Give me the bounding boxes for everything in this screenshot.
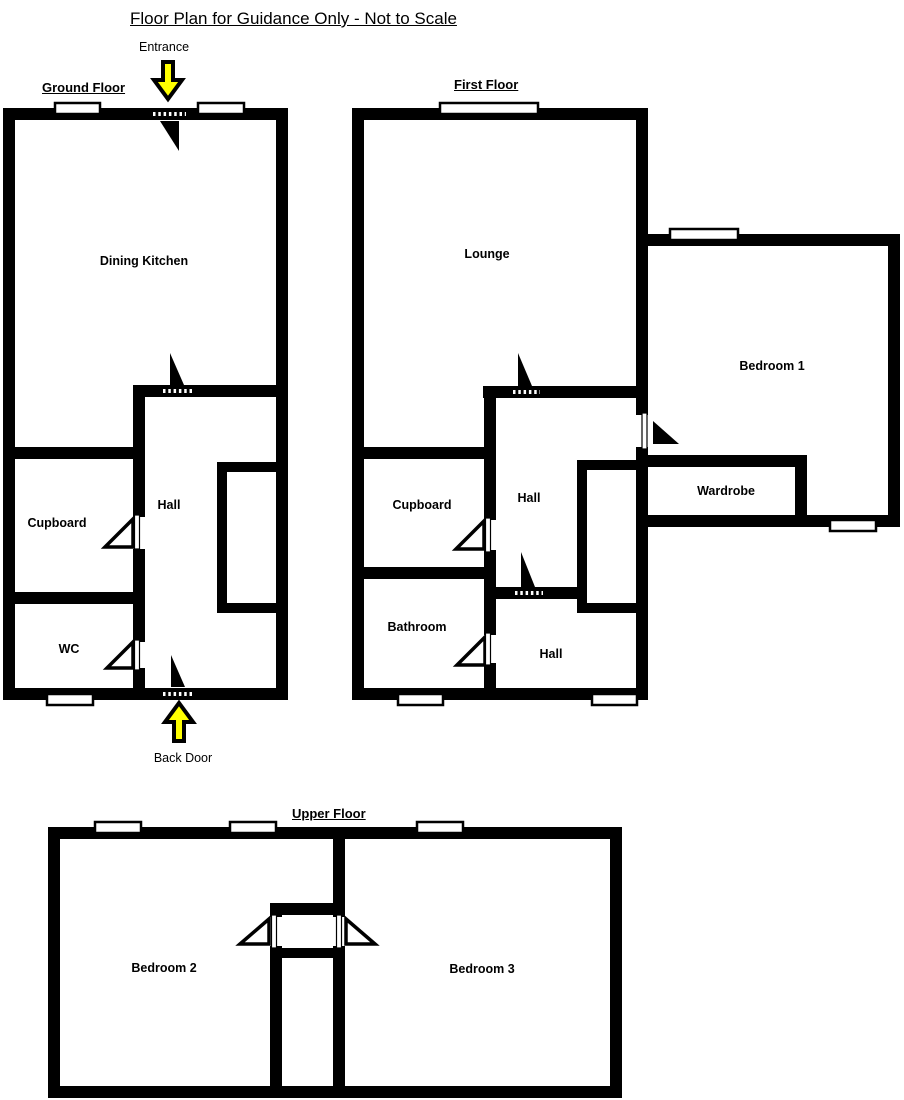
floor-plan-page: Floor Plan for Guidance Only - Not to Sc…	[0, 0, 904, 1100]
window	[47, 694, 93, 705]
wall	[48, 827, 60, 1098]
wall	[352, 567, 496, 579]
ground-floor-title: Ground Floor	[42, 80, 125, 95]
room-label-wardrobe: Wardrobe	[697, 484, 755, 498]
first-floor-title: First Floor	[454, 77, 518, 92]
wall	[3, 108, 15, 700]
door-leaf	[486, 633, 491, 665]
back-door-label: Back Door	[154, 751, 212, 765]
room-label-cupboard-first: Cupboard	[392, 498, 451, 512]
door-swing	[653, 421, 679, 444]
entrance-label: Entrance	[139, 40, 189, 54]
upper-floor-title: Upper Floor	[292, 806, 366, 821]
stair-wall	[577, 460, 648, 470]
window	[198, 103, 244, 114]
stair-wall	[577, 460, 587, 613]
window	[440, 103, 538, 114]
back-door-arrow-icon	[165, 703, 193, 741]
door-leaf	[135, 640, 140, 670]
wall	[3, 592, 145, 604]
room-label-lounge: Lounge	[464, 247, 509, 261]
stair-wall	[282, 948, 333, 958]
wall	[483, 386, 648, 398]
wall	[888, 234, 900, 527]
entrance-arrow-icon	[154, 62, 182, 99]
room-label-bathroom: Bathroom	[387, 620, 446, 634]
room-label-dining-kitchen: Dining Kitchen	[100, 254, 188, 268]
page-title: Floor Plan for Guidance Only - Not to Sc…	[130, 9, 457, 29]
door-leaf	[486, 518, 491, 552]
wall	[133, 385, 288, 397]
door-swing	[456, 521, 484, 549]
wall	[484, 587, 587, 599]
room-label-bedroom-3: Bedroom 3	[449, 962, 514, 976]
first-floor-plan	[352, 103, 900, 705]
door-swing	[518, 353, 532, 386]
arrows	[154, 62, 193, 741]
door-leaf	[272, 915, 277, 948]
door-swing	[107, 642, 133, 668]
stair-wall	[217, 462, 227, 613]
window	[230, 822, 276, 833]
window	[670, 229, 738, 240]
room-label-hall-first-upper: Hall	[518, 491, 541, 505]
stair-wall	[217, 603, 288, 613]
wardrobe-wall	[795, 455, 807, 527]
door-swing	[240, 919, 269, 944]
door-swing	[346, 919, 375, 944]
room-label-hall-ground: Hall	[158, 498, 181, 512]
wall	[3, 447, 145, 459]
floor-plan-drawing	[0, 0, 904, 1100]
upper-floor-plan	[48, 822, 622, 1098]
wall	[610, 827, 622, 1098]
window	[55, 103, 100, 114]
door-swing	[105, 519, 133, 547]
door-swing	[457, 637, 485, 665]
room-label-bedroom-2: Bedroom 2	[131, 961, 196, 975]
window	[830, 520, 876, 531]
door-swing	[521, 552, 535, 587]
window	[95, 822, 141, 833]
door-swing	[171, 655, 185, 687]
stair-wall	[217, 462, 288, 472]
door-swing	[170, 353, 184, 385]
room-label-hall-first-lower: Hall	[540, 647, 563, 661]
door-leaf	[337, 915, 342, 948]
wardrobe-wall	[648, 455, 807, 467]
room-label-bedroom-1: Bedroom 1	[739, 359, 804, 373]
door-swing	[160, 121, 179, 151]
door-leaf	[642, 413, 647, 449]
window	[398, 694, 443, 705]
wall	[352, 447, 496, 459]
ground-floor-plan	[3, 103, 288, 705]
stair-wall	[577, 603, 648, 613]
room-label-wc: WC	[59, 642, 80, 656]
door-leaf	[135, 515, 140, 549]
window	[417, 822, 463, 833]
wall	[352, 108, 364, 700]
room-label-cupboard-ground: Cupboard	[27, 516, 86, 530]
wall	[333, 827, 345, 907]
window	[592, 694, 637, 705]
